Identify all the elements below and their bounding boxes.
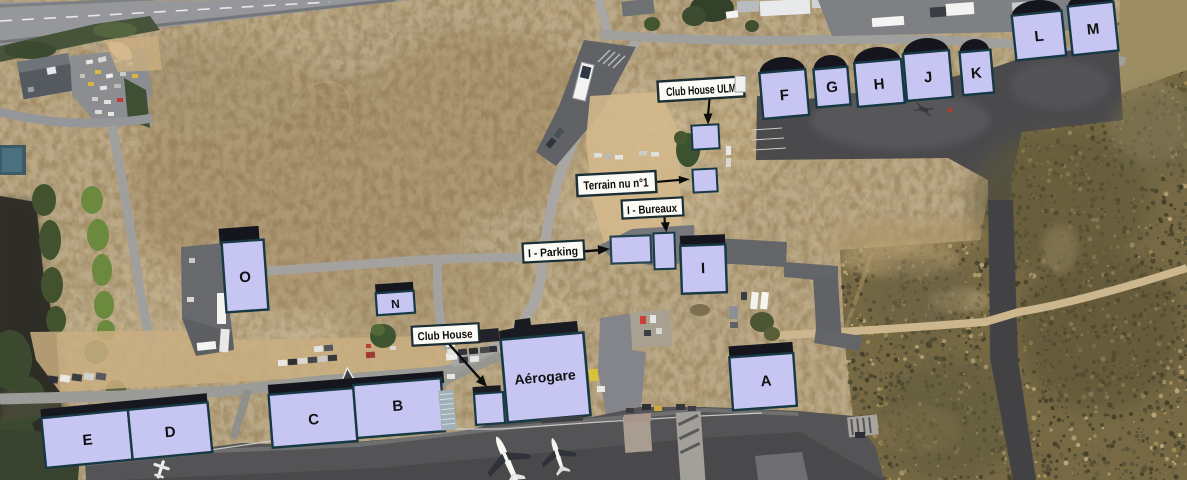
svg-text:D: D <box>164 423 177 441</box>
svg-text:C: C <box>308 411 320 429</box>
svg-text:N: N <box>391 297 401 312</box>
svg-text:O: O <box>239 269 252 287</box>
svg-text:M: M <box>1086 20 1100 38</box>
svg-text:H: H <box>873 76 885 94</box>
svg-text:B: B <box>392 397 404 415</box>
svg-text:I: I <box>701 260 706 277</box>
svg-text:L: L <box>1034 28 1045 46</box>
svg-text:A: A <box>760 372 772 390</box>
svg-text:E: E <box>82 431 94 449</box>
svg-text:F: F <box>779 87 790 105</box>
svg-text:J: J <box>923 69 933 87</box>
svg-text:K: K <box>970 65 982 83</box>
svg-text:G: G <box>825 79 838 97</box>
